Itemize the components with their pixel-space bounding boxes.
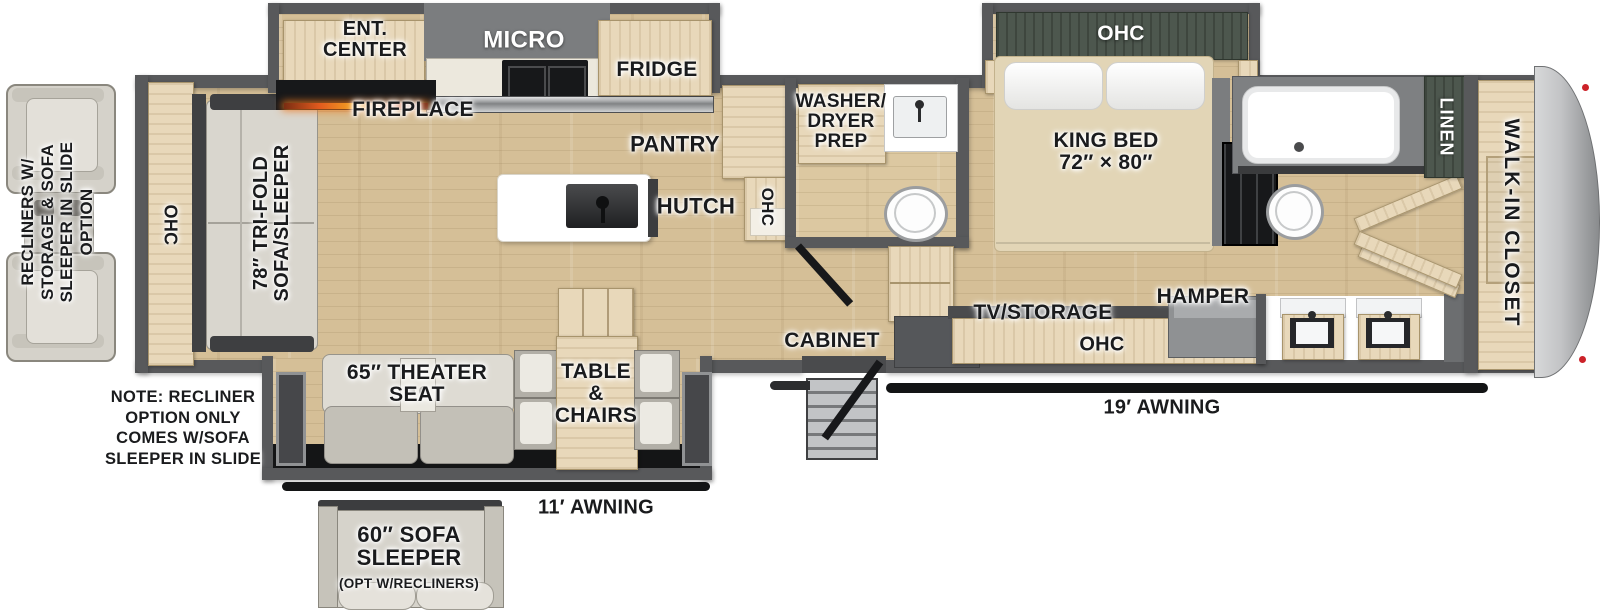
dinette-chair-br-pad: [640, 402, 672, 444]
bedroom-step-cabinet: [888, 246, 954, 322]
entry-grab-handle: [770, 381, 810, 390]
shower-pan: [1242, 86, 1400, 164]
awning-11-rail: [282, 482, 710, 491]
label-table-chairs: TABLE & CHAIRS: [555, 361, 637, 427]
slide-window-right: [682, 372, 712, 466]
shower-glass: [1238, 166, 1424, 174]
label-pantry: PANTRY: [630, 132, 720, 155]
sofa-backing: [192, 94, 206, 352]
wall-rear: [135, 75, 148, 373]
pillow-left: [1004, 62, 1103, 110]
lower-slide-wall-left: [262, 356, 273, 480]
label-washer-dryer-prep: WASHER/ DRYER PREP: [796, 92, 887, 152]
label-awning-19: 19′ AWNING: [1103, 398, 1220, 419]
dinette-chair-bl-pad: [520, 402, 552, 444]
shower-drain: [1294, 142, 1304, 152]
marker-light-top: [1582, 84, 1589, 91]
midbath-faucet-stem: [918, 108, 921, 122]
label-recliner-option: RECLINERS W/ STORAGE & SOFA SLEEPER IN S…: [18, 87, 96, 357]
theater-cushion-right: [420, 406, 514, 464]
front-cap: [1534, 66, 1600, 378]
dinette-hutch-cabinet: [558, 288, 634, 340]
vanity2-basin: [1372, 322, 1404, 344]
awning-19-rail: [886, 383, 1488, 393]
island-faucet-neck: [601, 207, 605, 223]
vanity1-faucet: [1308, 311, 1316, 319]
label-tv-storage: TV/STORAGE: [973, 302, 1112, 324]
label-micro: MICRO: [483, 27, 565, 52]
label-hutch: HUTCH: [657, 194, 736, 217]
pillow-right: [1106, 62, 1205, 110]
bedroom-step-divider: [890, 282, 950, 284]
midbath-wall-left: [785, 78, 796, 248]
label-hamper: HAMPER: [1157, 286, 1250, 308]
label-ohc-rear: OHC: [161, 205, 180, 246]
label-ohc-bottom: OHC: [1079, 335, 1124, 356]
theater-cushion-left: [324, 406, 418, 464]
closet-partition-wall: [1464, 75, 1478, 373]
label-theater-seat: 65″ THEATER SEAT: [347, 362, 487, 406]
lower-slide-wall-bottom: [262, 468, 712, 480]
label-ent-center: ENT. CENTER: [323, 19, 407, 61]
label-ohc-bedroom: OHC: [1097, 23, 1145, 45]
label-awning-11: 11′ AWNING: [538, 498, 654, 519]
label-sofa-option-sub: (OPT W/RECLINERS): [339, 577, 479, 591]
frontbath-toilet-seat: [1275, 191, 1313, 231]
label-king-bed: KING BED 72″ × 80″: [1053, 130, 1158, 174]
sofa-option-arm-left: [318, 506, 338, 608]
midbath-toilet-seat: [894, 193, 936, 233]
label-walk-in-closet: WALK-IN CLOSET: [1500, 119, 1522, 328]
vanity1-basin: [1296, 322, 1328, 344]
label-linen: LINEN: [1437, 98, 1456, 157]
marker-light-bottom: [1579, 356, 1586, 363]
pantry-cabinet: [722, 85, 786, 179]
label-note: NOTE: RECLINER OPTION ONLY COMES W/SOFA …: [105, 387, 261, 470]
label-tri-fold-sofa: 78″ TRI-FOLD SOFA/SLEEPER: [251, 113, 293, 333]
bed-foot-seam: [996, 242, 1210, 244]
rv-floorplan: ENT. CENTER MICRO FRIDGE FIREPLACE PANTR…: [0, 0, 1600, 614]
label-sofa-option-main: 60″ SOFA SLEEPER: [357, 523, 462, 569]
vanity2-faucet: [1384, 311, 1392, 319]
label-ohc-kitchen: OHC: [758, 188, 776, 227]
label-cabinet: CABINET: [784, 330, 879, 352]
label-fireplace: FIREPLACE: [352, 99, 474, 121]
sofa-armrest-bottom: [210, 336, 314, 352]
wall-bottom-mid: [700, 360, 802, 373]
dinette-chair-tl-pad: [520, 354, 552, 392]
label-fridge: FRIDGE: [616, 59, 697, 81]
slide-window-left: [276, 372, 306, 466]
frontbath-divider-left: [1256, 294, 1266, 364]
dinette-chair-tr-pad: [640, 354, 672, 392]
sofa-seam-vertical: [240, 102, 242, 346]
